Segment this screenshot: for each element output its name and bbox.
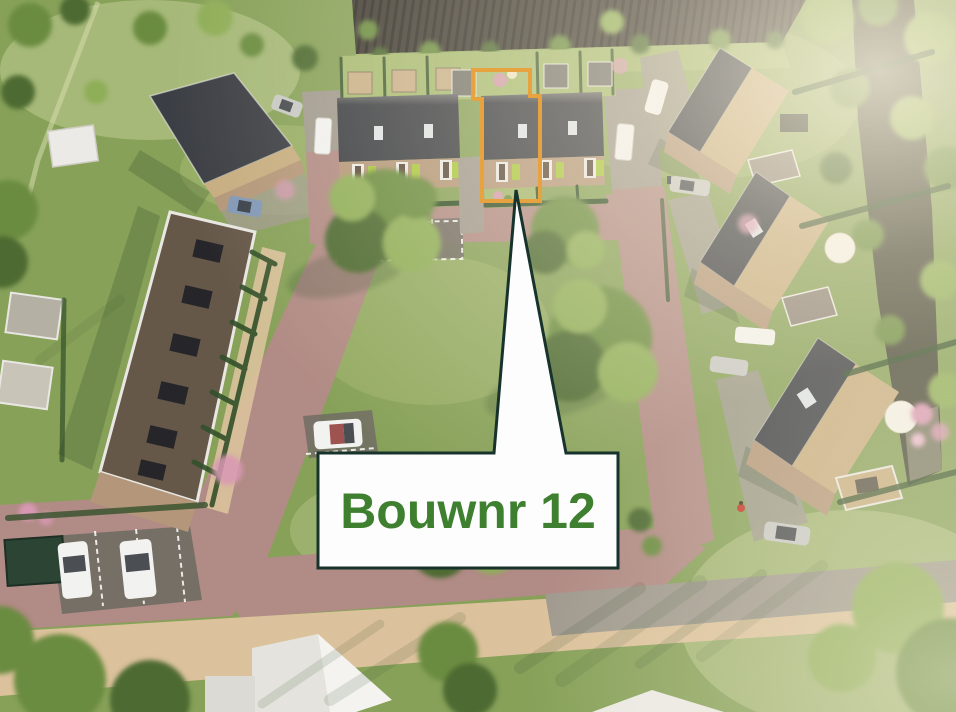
callout-label: Bouwnr 12 bbox=[340, 483, 596, 539]
corner-haze bbox=[0, 0, 956, 712]
site-plan-render: Bouwnr 12 bbox=[0, 0, 956, 712]
aerial-render-canvas: Bouwnr 12 bbox=[0, 0, 956, 712]
